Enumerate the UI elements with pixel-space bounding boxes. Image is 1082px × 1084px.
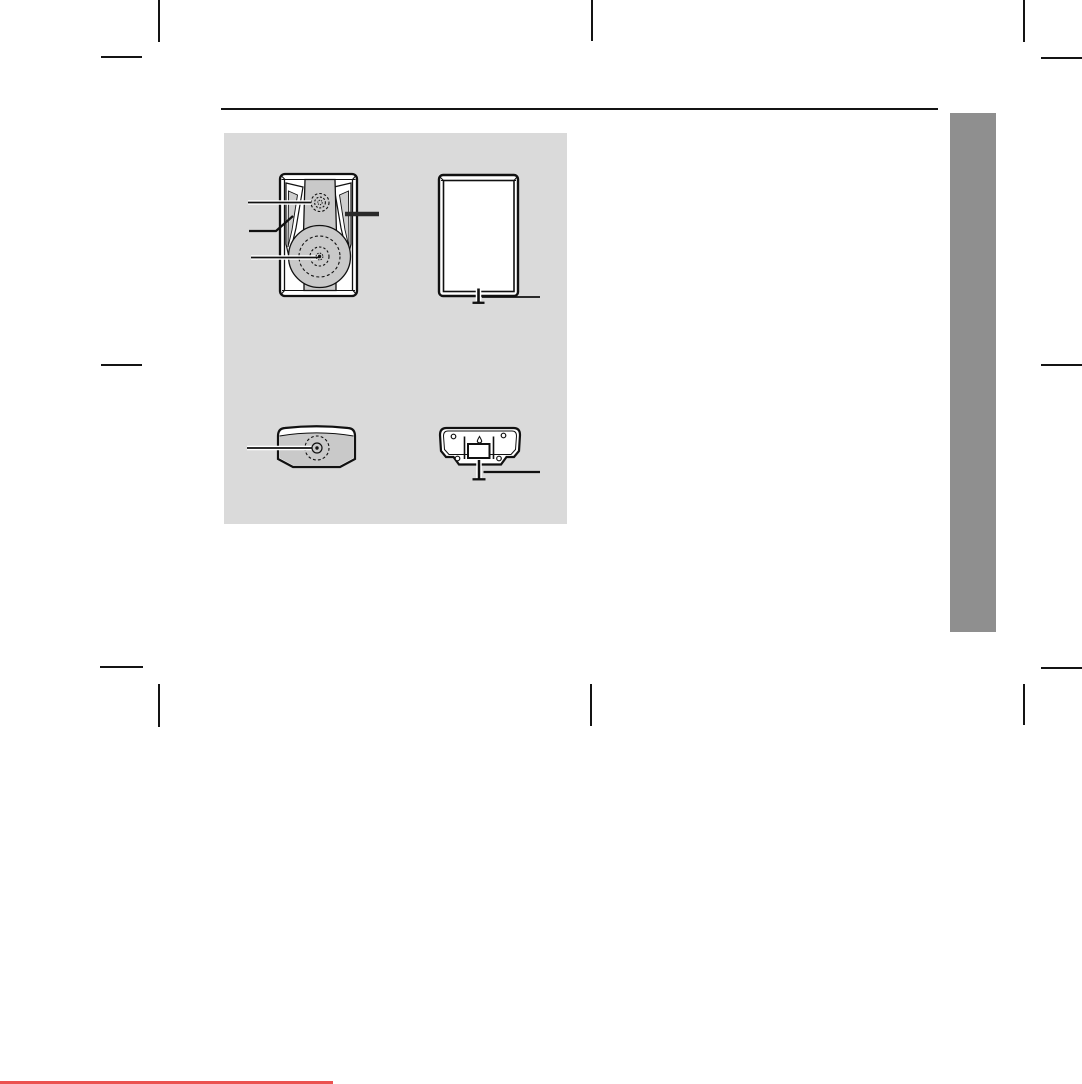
screw-hole bbox=[497, 456, 502, 461]
crop-mark-vertical-bottom-right bbox=[1023, 684, 1025, 725]
section-rule bbox=[221, 108, 938, 110]
speaker-bottom-view-figure bbox=[440, 428, 540, 479]
woofer-center-dot bbox=[318, 255, 321, 258]
crop-mark-horizontal-lower-right bbox=[1041, 667, 1082, 669]
screw-hole bbox=[501, 433, 506, 438]
crop-mark-vertical-bottom-left bbox=[158, 684, 160, 727]
top-driver-center-dot bbox=[315, 446, 318, 449]
speaker-top-view-figure bbox=[247, 426, 355, 467]
crop-mark-horizontal-mid-right bbox=[1041, 364, 1082, 366]
rear-back-panel bbox=[444, 181, 515, 292]
crop-mark-horizontal-upper-left bbox=[101, 56, 142, 58]
crop-mark-vertical-top-right bbox=[1023, 0, 1025, 42]
illustration-panel bbox=[224, 133, 567, 524]
crop-mark-vertical-bottom-center bbox=[590, 684, 592, 726]
screw-hole bbox=[451, 434, 456, 439]
speaker-diagrams bbox=[224, 133, 567, 524]
crop-mark-horizontal-upper-right bbox=[1041, 57, 1082, 59]
crop-mark-vertical-top-left bbox=[158, 0, 160, 42]
crop-mark-horizontal-mid-left bbox=[101, 364, 142, 366]
crop-mark-horizontal-lower-left bbox=[100, 666, 143, 668]
manual-page bbox=[0, 0, 1082, 1084]
speaker-front-view-figure bbox=[248, 174, 379, 296]
label-plate bbox=[468, 444, 490, 458]
chapter-tab bbox=[950, 113, 996, 632]
screw-hole bbox=[455, 456, 460, 461]
crop-mark-vertical-top-center bbox=[591, 0, 593, 41]
speaker-rear-view-figure bbox=[439, 175, 540, 303]
